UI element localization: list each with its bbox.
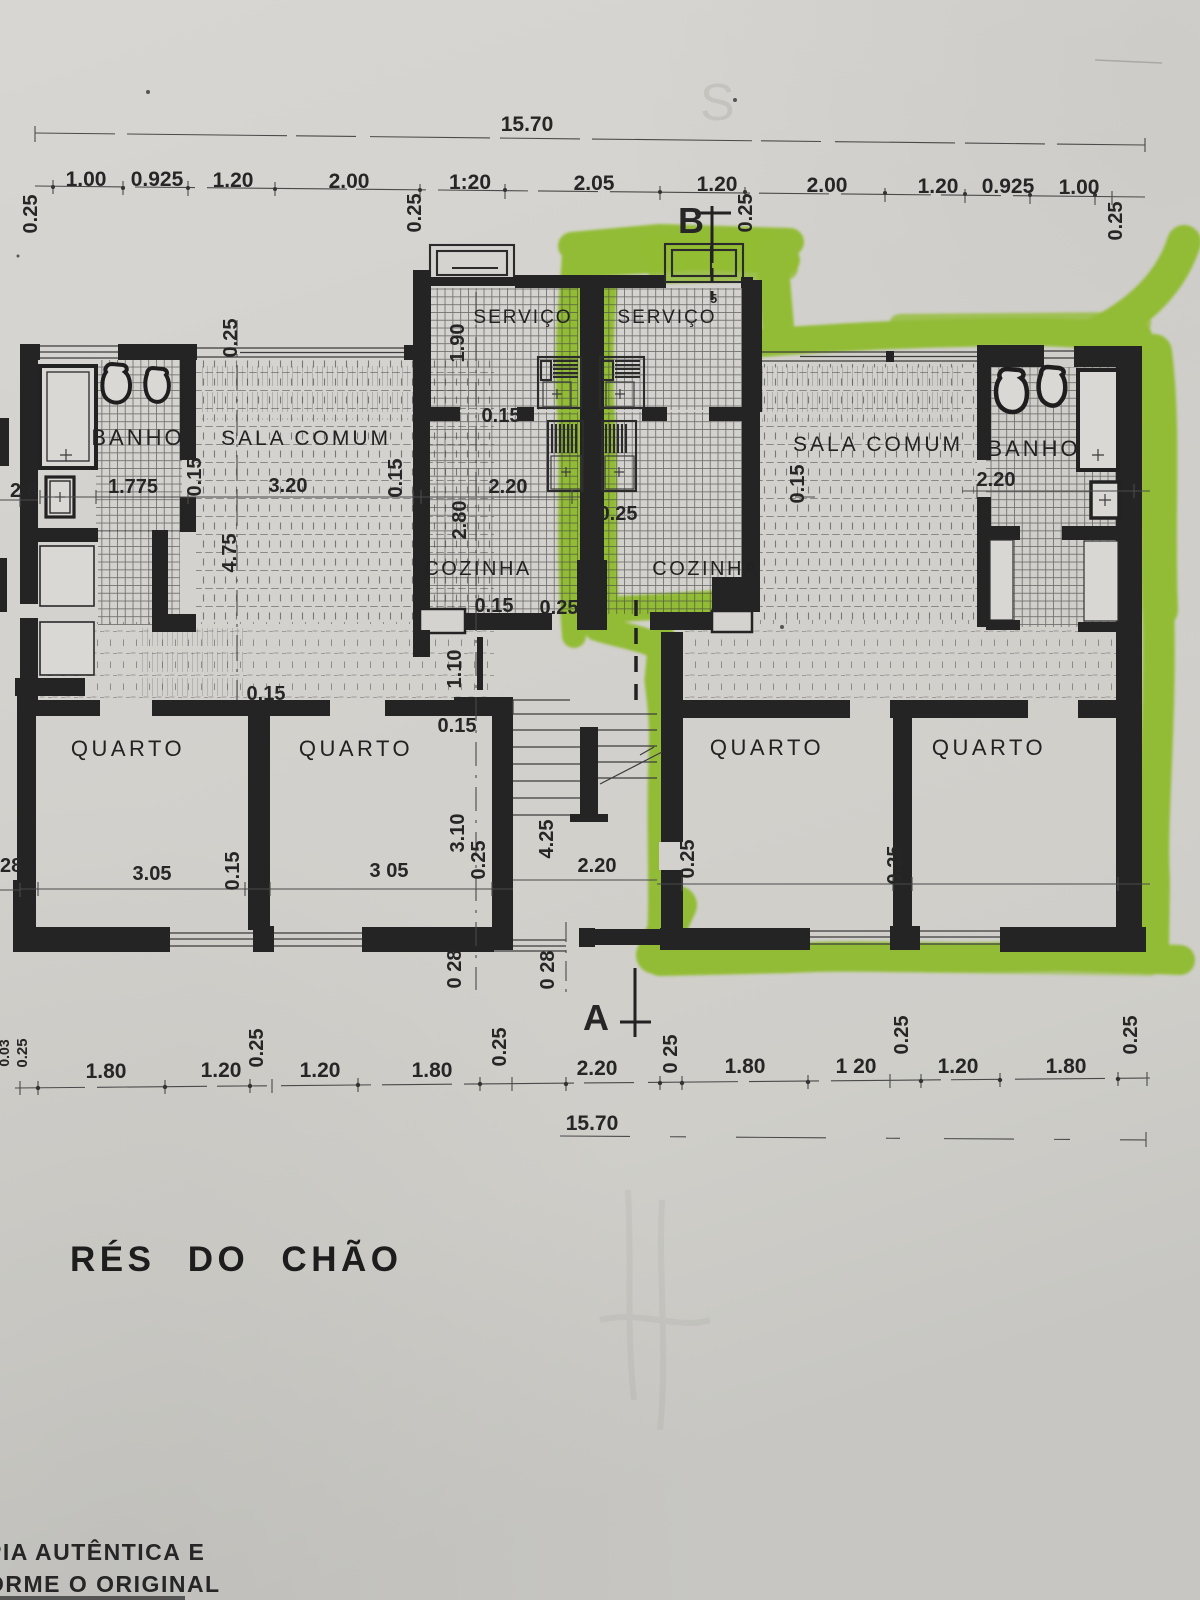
svg-text:0.15: 0.15 xyxy=(385,459,407,498)
svg-text:RÉS DO CHÃO: RÉS DO CHÃO xyxy=(70,1239,402,1279)
svg-text:QUARTO: QUARTO xyxy=(299,736,413,761)
svg-text:0.25: 0.25 xyxy=(1120,1016,1142,1055)
svg-text:2.20: 2.20 xyxy=(578,855,617,877)
svg-text:1.80: 1.80 xyxy=(1046,1055,1087,1078)
svg-text:0.925: 0.925 xyxy=(982,175,1035,198)
svg-text:3 05: 3 05 xyxy=(370,860,409,882)
svg-text:1.20: 1.20 xyxy=(213,169,254,192)
svg-text:0.25: 0.25 xyxy=(404,194,426,233)
svg-text:0.15: 0.15 xyxy=(482,405,521,427)
svg-text:QUARTO: QUARTO xyxy=(710,735,824,760)
svg-text:SALA COMUM: SALA COMUM xyxy=(793,433,963,456)
svg-text:0.25: 0.25 xyxy=(20,195,42,234)
svg-text:0.25: 0.25 xyxy=(677,840,699,879)
svg-text:0.925: 0.925 xyxy=(131,168,184,191)
svg-text:1.00: 1.00 xyxy=(66,168,107,191)
svg-text:1:20: 1:20 xyxy=(449,171,491,194)
svg-text:2.20: 2.20 xyxy=(577,1057,618,1080)
svg-text:1.20: 1.20 xyxy=(300,1059,341,1082)
svg-text:0.25: 0.25 xyxy=(468,841,490,880)
svg-text:0.25: 0.25 xyxy=(891,1016,913,1055)
svg-text:0.15: 0.15 xyxy=(438,715,477,737)
svg-text:1.80: 1.80 xyxy=(86,1060,127,1083)
svg-text:0.15: 0.15 xyxy=(247,683,286,705)
svg-text:28: 28 xyxy=(0,855,22,877)
svg-text:1.80: 1.80 xyxy=(725,1055,766,1078)
svg-text:3.10: 3.10 xyxy=(447,814,469,853)
svg-text:1.20: 1.20 xyxy=(697,173,738,196)
svg-text:5: 5 xyxy=(710,291,717,306)
svg-text:PIA AUTÊNTICA E: PIA AUTÊNTICA E xyxy=(0,1538,205,1565)
svg-text:SERVIÇO: SERVIÇO xyxy=(617,307,716,328)
svg-text:S: S xyxy=(700,74,735,132)
svg-text:0.25: 0.25 xyxy=(14,1038,31,1067)
svg-text:COZINHA: COZINHA xyxy=(424,558,532,580)
svg-text:0.25: 0.25 xyxy=(884,846,906,885)
svg-text:1.20: 1.20 xyxy=(918,175,959,198)
svg-text:QUARTO: QUARTO xyxy=(932,735,1046,760)
svg-text:SALA COMUM: SALA COMUM xyxy=(221,427,391,450)
svg-text:0.03: 0.03 xyxy=(0,1039,12,1066)
svg-text:2.8: 2.8 xyxy=(10,480,38,502)
svg-text:0.15: 0.15 xyxy=(475,595,514,617)
svg-text:1.00: 1.00 xyxy=(1059,176,1100,199)
svg-text:0.25: 0.25 xyxy=(735,194,757,233)
svg-text:3.20: 3.20 xyxy=(269,475,308,497)
svg-text:COZINHA: COZINHA xyxy=(652,558,760,580)
svg-text:2.80: 2.80 xyxy=(449,501,471,540)
svg-text:3.05: 3.05 xyxy=(133,863,172,885)
svg-text:0.25: 0.25 xyxy=(1105,202,1127,241)
svg-text:1.20: 1.20 xyxy=(201,1059,242,1082)
svg-text:15.70: 15.70 xyxy=(501,113,554,136)
svg-text:0 28: 0 28 xyxy=(537,951,559,990)
svg-text:0.25: 0.25 xyxy=(599,503,638,525)
svg-text:0 25: 0 25 xyxy=(660,1035,682,1074)
svg-text:1.10: 1.10 xyxy=(444,650,466,689)
svg-text:A: A xyxy=(583,997,609,1038)
svg-text:QUARTO: QUARTO xyxy=(71,736,185,761)
svg-text:0.25: 0.25 xyxy=(540,597,579,619)
svg-text:0.25: 0.25 xyxy=(220,319,242,358)
svg-text:0.25: 0.25 xyxy=(246,1029,268,1068)
svg-text:BANHO: BANHO xyxy=(91,425,184,450)
svg-text:2.20: 2.20 xyxy=(977,469,1016,491)
svg-text:4.75: 4.75 xyxy=(219,534,241,573)
svg-text:ORME O ORIGINAL: ORME O ORIGINAL xyxy=(0,1571,221,1597)
svg-text:1.20: 1.20 xyxy=(938,1055,979,1078)
svg-text:2.00: 2.00 xyxy=(807,174,848,197)
svg-text:1 20: 1 20 xyxy=(836,1055,877,1078)
svg-text:0.15: 0.15 xyxy=(184,458,206,497)
svg-text:1.90: 1.90 xyxy=(447,324,469,363)
svg-text:2.00: 2.00 xyxy=(329,170,370,193)
svg-text:B: B xyxy=(678,200,704,241)
svg-text:2.20: 2.20 xyxy=(489,476,528,498)
svg-text:1.80: 1.80 xyxy=(412,1059,453,1082)
svg-text:0.15: 0.15 xyxy=(222,852,244,891)
svg-text:SERVIÇO: SERVIÇO xyxy=(473,307,572,328)
svg-text:4.25: 4.25 xyxy=(536,820,558,859)
svg-text:1.775: 1.775 xyxy=(108,476,158,498)
svg-text:0.15: 0.15 xyxy=(787,465,809,504)
svg-text:15.70: 15.70 xyxy=(566,1112,619,1135)
svg-text:0 28: 0 28 xyxy=(444,950,466,989)
svg-text:BANHO: BANHO xyxy=(987,436,1080,461)
svg-text:2.05: 2.05 xyxy=(574,172,615,195)
svg-text:0.25: 0.25 xyxy=(489,1028,511,1067)
